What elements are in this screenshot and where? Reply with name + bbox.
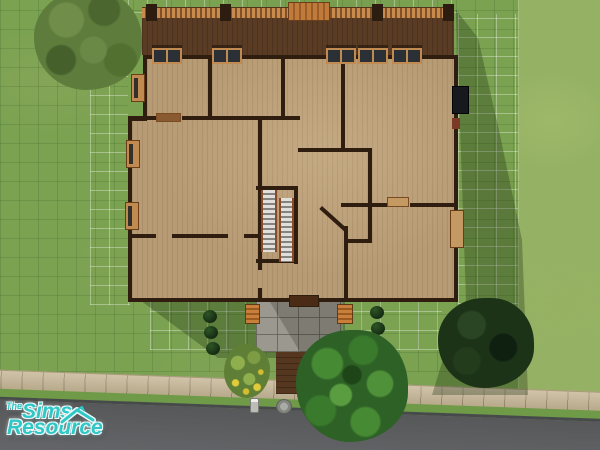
tree-front-center[interactable]	[296, 330, 408, 442]
interior-wall[interactable]	[346, 239, 372, 243]
porch-bench-left[interactable]	[245, 304, 260, 324]
back-window[interactable]	[358, 48, 388, 64]
bush[interactable]	[203, 310, 217, 323]
bush[interactable]	[370, 306, 384, 319]
interior-wall[interactable]	[258, 288, 262, 302]
interior-wall[interactable]	[298, 148, 372, 152]
staircase-right-flight[interactable]	[279, 198, 294, 262]
tree-back-left[interactable]	[34, 0, 142, 90]
back-window[interactable]	[152, 48, 182, 64]
interior-wall[interactable]	[341, 203, 387, 207]
fire-hydrant[interactable]	[250, 398, 259, 413]
back-window[interactable]	[392, 48, 422, 64]
open-interior-door[interactable]	[387, 197, 409, 207]
porch-bench-right[interactable]	[337, 304, 353, 324]
back-window[interactable]	[326, 48, 356, 64]
deck-post	[146, 4, 157, 21]
interior-wall[interactable]	[341, 55, 345, 152]
deck-bench[interactable]	[288, 2, 330, 21]
foundation-grid-left	[90, 55, 130, 305]
tree-front-right[interactable]	[438, 298, 534, 388]
deck-post	[372, 4, 383, 21]
manhole-cover	[276, 399, 292, 414]
front-door[interactable]	[289, 295, 319, 307]
deck-post	[220, 4, 231, 21]
interior-wall[interactable]	[368, 150, 372, 243]
watermark-the: The	[6, 401, 22, 411]
interior-wall[interactable]	[244, 234, 262, 238]
interior-wall[interactable]	[344, 226, 348, 302]
bush[interactable]	[204, 326, 218, 339]
bay-window[interactable]	[131, 74, 145, 102]
deck-post	[443, 4, 454, 21]
interior-wall[interactable]	[294, 186, 298, 264]
roof-icon	[60, 406, 96, 426]
wall-fixture	[452, 118, 460, 129]
side-door[interactable]	[450, 210, 464, 248]
interior-doorway[interactable]	[156, 113, 181, 122]
bush[interactable]	[206, 342, 220, 355]
bay-window[interactable]	[126, 140, 140, 168]
interior-wall[interactable]	[128, 116, 156, 120]
interior-wall[interactable]	[128, 234, 156, 238]
dark-window[interactable]	[452, 86, 469, 114]
interior-wall[interactable]	[182, 116, 300, 120]
interior-wall[interactable]	[208, 55, 212, 120]
game-viewport[interactable]: TheSims Resource	[0, 0, 600, 450]
interior-wall[interactable]	[410, 203, 458, 207]
house-floor[interactable]	[128, 55, 458, 302]
bay-window[interactable]	[125, 202, 139, 230]
staircase-left-flight[interactable]	[261, 190, 277, 252]
interior-wall[interactable]	[172, 234, 228, 238]
back-window[interactable]	[212, 48, 242, 64]
interior-wall[interactable]	[281, 55, 285, 120]
